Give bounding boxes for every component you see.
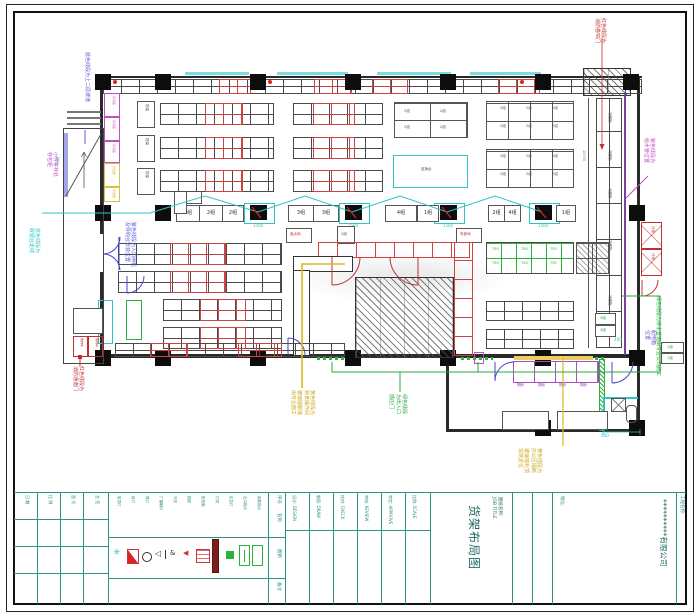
cooler-label: 冷柜 (651, 226, 655, 233)
counter-label: 冷藏柜 (608, 188, 612, 199)
service-desk (174, 191, 187, 214)
note-blue-botright: 配电箱 位置 (644, 330, 657, 345)
fixture-label: 隔断 (517, 384, 524, 388)
field-label: 日 期 (25, 495, 30, 504)
micro-label: 2组 (341, 233, 347, 237)
company-name: **********有限公司 (659, 499, 668, 567)
lane-box-small: 4组 (595, 325, 616, 337)
gondola-red (170, 243, 226, 265)
micro-label: 2组 (500, 107, 506, 111)
micro-label: 2组 (440, 126, 446, 130)
green-wall-segment (317, 357, 347, 360)
legend-item-name: 广播喇叭 (159, 496, 163, 510)
legend-item-name: 插座 (187, 496, 191, 503)
note-blue-topleft: 蓝色线段为上二层坡道 (84, 52, 90, 102)
titleblock-line (309, 492, 310, 604)
legend-symbol-panel-icon (196, 549, 210, 563)
shelf-label: 货架 (145, 138, 149, 145)
dimension-label: 1500 (243, 224, 273, 228)
legend-item-name: 灯带 (215, 496, 219, 503)
micro-label: 2组 (552, 107, 558, 111)
skylight-line (470, 72, 541, 75)
lane-box: 3组 (313, 205, 339, 222)
legend-line (108, 537, 285, 538)
titleblock-line (357, 492, 358, 604)
micro-label: 2组 (526, 125, 532, 129)
micro-label: 2组 (404, 126, 410, 130)
cooler-label: 冷柜 (651, 253, 655, 260)
red-marker (268, 80, 272, 84)
dept-label-box: 面点间 (286, 228, 312, 243)
locker-label: 存包柜 (111, 166, 115, 175)
legend-symbol-speaker-icon (165, 550, 166, 559)
legend-line (285, 492, 286, 604)
micro-label: 促销台 (421, 168, 432, 172)
column (623, 74, 639, 90)
column (155, 74, 171, 90)
locker-label: 存包柜 (111, 96, 115, 105)
gondola-row (486, 301, 574, 321)
field-label: 设计: DESIGN (292, 495, 297, 521)
micro-label: 2组 (500, 173, 506, 177)
skylight-line (185, 72, 249, 75)
register-column (440, 205, 457, 220)
micro-label: 2组 (500, 125, 506, 129)
lane-label: 4组 (600, 329, 606, 333)
green-grid (486, 242, 574, 274)
legend-item-name: 开关 (173, 496, 177, 503)
titleblock-line (14, 573, 108, 574)
yellow-wall-segment (514, 356, 593, 360)
legend-header: 图例 (275, 549, 281, 558)
titleblock-line (333, 492, 334, 604)
legend-symbol-speaker-icon: ◁ (155, 550, 161, 558)
gondola-red (313, 170, 355, 192)
drawing-title: 货架布局图 (466, 505, 481, 570)
field-label: 审核: REVIEW (364, 495, 369, 521)
project-label: 工程名称: (678, 495, 684, 515)
legend-header: 名称 (275, 513, 281, 522)
locker-label: 存包柜 (111, 189, 115, 198)
titleblock-line (60, 492, 61, 604)
legend-item-name: 吸顶灯 (117, 496, 121, 507)
micro-label: 750 (521, 262, 528, 266)
top-shelf-red (219, 79, 251, 94)
field-label: 图 号 (71, 495, 76, 504)
lane-box: 4组 (385, 205, 417, 222)
bottom-shelf-red (150, 343, 188, 357)
column (629, 205, 645, 221)
room-left-wall (446, 358, 449, 432)
legend-line (108, 578, 285, 579)
micro-label: 750 (492, 248, 499, 252)
register-column (535, 205, 552, 220)
red-marker (520, 80, 524, 84)
step-line (67, 123, 101, 125)
note-red-bottomleft: 红色线段为 消防通道门 (72, 366, 85, 391)
titleblock-line (285, 530, 430, 531)
top-wall (100, 76, 642, 78)
locker-label: 存包柜 (111, 144, 115, 153)
micro-label: 2组 (404, 110, 410, 114)
hatched-core (355, 277, 454, 358)
wash-basin (611, 398, 626, 412)
legend-symbol-evacuation-icon (252, 545, 263, 566)
note-magenta-left: 小件寄存处 存包柜 (46, 152, 59, 177)
note-red-topright: 红色线段为 消防卷帘门 (594, 18, 607, 43)
counter-label: 冷藏柜 (608, 295, 612, 306)
micro-label: 750 (521, 248, 528, 252)
locker-label: 存包柜 (111, 120, 115, 129)
column (155, 205, 171, 221)
titleblock-topline (14, 492, 686, 493)
legend-symbol-emergency-icon (226, 551, 234, 559)
top-shelf-red (498, 79, 540, 94)
lane-box: 2组 (222, 205, 244, 222)
titleblock-line (430, 492, 431, 604)
skylight-line (277, 72, 348, 75)
legend-item-name: 筒灯 (145, 496, 149, 503)
legend-item-name: 配电箱 (201, 496, 205, 507)
office-table (502, 411, 549, 430)
bottom-shelf-red (238, 343, 282, 357)
field-label: 校对: CHECK (340, 495, 345, 519)
titleblock-line (14, 519, 108, 520)
note-green-bottom: 绿色线段 为出入口 感应门 (388, 394, 407, 414)
titleblock-line (405, 492, 406, 604)
micro-label: 750 (550, 262, 557, 266)
legend-symbol-lamp-icon: ✳ (113, 549, 121, 558)
titleblock-line (552, 492, 553, 604)
titleblock-line (37, 492, 38, 604)
water-heater (626, 405, 637, 423)
note-yellow-botright: 黄色线段为 办公区隔断 玻璃墙到顶 现场定位 (517, 448, 542, 473)
drawing-name-label-cn: 图纸名称: (496, 497, 502, 519)
gondola-red (205, 137, 243, 159)
drawing-name-label-en: JOB TITLE (491, 497, 497, 519)
fixture-label: 隔断 (559, 384, 566, 388)
titleblock-line (676, 492, 677, 604)
legend-header: 备注 (275, 582, 281, 591)
lane-box-small: 1组 (661, 353, 684, 364)
gondola-red (200, 299, 246, 321)
partition-line (588, 98, 589, 348)
micro-label: 2组 (526, 173, 532, 177)
gondola-red (205, 170, 243, 192)
promo-table (393, 155, 468, 188)
cad-sheet: 1500 1500 1500 1500 2组 2组 2组 3组 3组 4组 1组… (0, 0, 700, 616)
titleblock-line (108, 492, 109, 604)
dimension-label: 500 (590, 434, 620, 438)
lane-label: 1组 (667, 357, 673, 361)
lane-box: 2组 (488, 205, 505, 222)
counter-label: 冷藏柜 (608, 112, 612, 123)
lane-box: 1组 (417, 205, 439, 222)
fixture-label: 隔断 (580, 384, 587, 388)
column (629, 350, 645, 366)
dept-label-box: 熟食间 (456, 228, 482, 243)
field-label: 会 签 (95, 495, 100, 504)
column (440, 74, 456, 90)
legend-symbol-switch-icon: & (170, 550, 175, 557)
gondola-red (313, 137, 355, 159)
ramp-edge (64, 133, 68, 197)
titleblock-line (532, 492, 533, 604)
dept-label: 面点间 (290, 233, 301, 237)
island-table (394, 102, 468, 138)
gondola-row (486, 329, 574, 349)
top-shelf-red (372, 79, 408, 94)
shelf-label: 货架 (145, 104, 149, 111)
shelf-label: 货架 (145, 171, 149, 178)
fixture-label: 隔断 (538, 384, 545, 388)
legend-header: 序号 (275, 495, 281, 504)
gondola-red (205, 103, 243, 125)
lane-label: 1组 (667, 346, 673, 350)
wall-counter-strip (596, 98, 622, 348)
stall-fixtures (513, 361, 599, 383)
magenta-tick (474, 352, 484, 364)
lane-box-small: 3组 (595, 313, 616, 325)
drawing-name-label: 图纸名称:JOB TITLE (491, 497, 502, 519)
column (345, 74, 361, 90)
office-table (557, 411, 608, 430)
address-label: 地址: (558, 496, 564, 507)
legend-symbol-socket-icon: ◀ (183, 550, 188, 557)
lane-box: 2组 (199, 205, 223, 222)
dimension-label: 15750 (582, 150, 586, 161)
micro-label: 2组 (500, 155, 506, 159)
cart-label: 购物车 (79, 338, 83, 347)
lane-label: 3组 (600, 317, 606, 321)
micro-label: 2组 (526, 155, 532, 159)
vestibule-box (73, 308, 103, 334)
water-pipe-line (624, 93, 626, 355)
column (250, 74, 266, 90)
legend-line (268, 492, 269, 604)
cart-label: 购物车 (94, 338, 98, 347)
field-label: 比例: SCALE (412, 495, 417, 518)
note-magenta-right: 紫色线段为 给水管位置 (643, 138, 656, 163)
gondola-red (313, 103, 355, 125)
column (535, 74, 551, 90)
legend-item-name: 出口指示 (243, 496, 247, 510)
legend-symbol-downlight-icon (142, 552, 152, 562)
hatch-cells (576, 242, 610, 274)
lane-box-small: 1组 (661, 342, 684, 353)
step-line (67, 111, 101, 113)
lane-box: 3组 (288, 205, 314, 222)
legend-item-name: 疏散指示 (257, 496, 261, 510)
legend-symbol-exit-icon (239, 545, 250, 566)
lane-box: 4组 (504, 205, 521, 222)
counter-label: 冷藏柜 (608, 150, 612, 161)
micro-label: 750 (492, 262, 499, 266)
titleblock-line (512, 492, 513, 604)
legend-symbol-lightstrip-icon (212, 539, 219, 573)
dimension-label: 1500 (528, 224, 558, 228)
column (95, 74, 111, 90)
dept-label: 熟食间 (460, 233, 471, 237)
micro-label: 2组 (526, 107, 532, 111)
field-label: 审定: APPROVE (388, 495, 393, 524)
micro-label: 2组 (440, 110, 446, 114)
field-label: 比 例 (48, 495, 53, 504)
legend-item-name: 射灯 (131, 496, 135, 503)
micro-label: 2组 (552, 125, 558, 129)
micro-label: 2组 (552, 155, 558, 159)
titleblock-line (83, 492, 84, 604)
legend-symbol-spotlight-icon (127, 549, 139, 564)
titleblock-line (381, 492, 382, 604)
lane-box: 1组 (556, 205, 576, 222)
note-cyan-left: 蓝色线段为 收银台走线 (28, 228, 41, 253)
dimension-label: 400 (608, 338, 628, 342)
step-line (67, 117, 101, 119)
note-purple-left: 紫色线段为入口闸机 及导购台安装位置 (124, 222, 137, 267)
gondola-red (170, 271, 226, 293)
micro-label: 2组 (552, 173, 558, 177)
micro-label: 750 (550, 248, 557, 252)
green-shelf (126, 300, 142, 340)
kitchen-counter-right (454, 242, 473, 356)
field-label: 制图: DRAW (316, 495, 321, 518)
register-column (345, 205, 362, 220)
note-yellow-bottom: 黄色线段为 熟食操作间 玻璃隔断墙 由专业施工 (290, 390, 315, 415)
titleblock-line (14, 546, 108, 547)
register-column (250, 205, 267, 220)
red-marker (113, 80, 117, 84)
legend-item-name: 应急灯 (229, 496, 233, 507)
